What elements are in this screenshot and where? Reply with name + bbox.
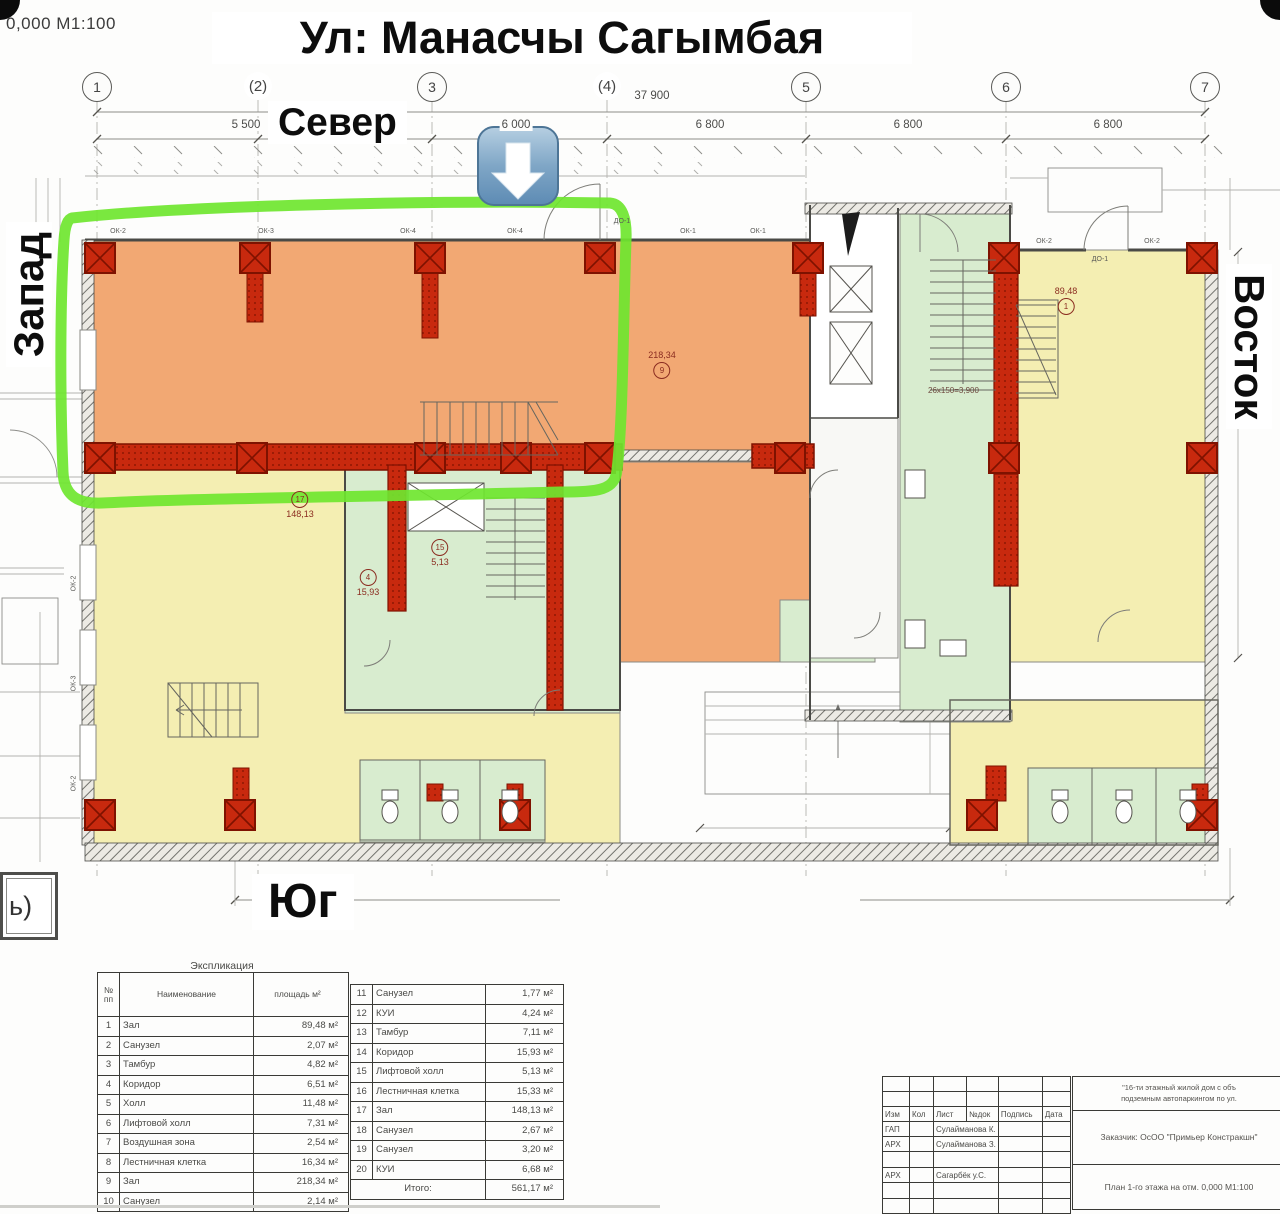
room-tag: 17 148,13 <box>286 490 314 520</box>
row-name: Коридор <box>120 1075 254 1095</box>
project-description: "16-ти этажный жилой дом с объ подземным… <box>1073 1077 1280 1111</box>
row-number: 5 <box>98 1095 120 1115</box>
row-name: Тамбур <box>120 1056 254 1076</box>
row-name: Воздушная зона <box>120 1134 254 1154</box>
compass-south: Юг <box>252 874 354 930</box>
sheet-title-cell: План 1-го этажа на отм. 0,000 М1:100 <box>1073 1165 1280 1211</box>
row-area: 4,24 м² <box>486 1004 564 1024</box>
stamp-col: Дата <box>1042 1107 1070 1122</box>
row-name: Лифтовой холл <box>120 1114 254 1134</box>
row-name: Зал <box>120 1017 254 1037</box>
row-area: 218,34 м² <box>254 1173 349 1193</box>
axis-bubble-1: 1 <box>82 72 112 102</box>
row-name: КУИ <box>373 1160 486 1180</box>
explication-table-1: № пп Наименование площадь м² 1 Зал 89,48… <box>97 972 349 1212</box>
row-name: КУИ <box>373 1004 486 1024</box>
stair-note: 26х150=3,900 <box>928 386 979 395</box>
room-area: 148,13 <box>286 509 314 520</box>
room-number: 1 <box>1058 298 1075 315</box>
room-tag: 4 15,93 <box>357 568 380 598</box>
explication-row: 16 Лестничная клетка 15,33 м² <box>351 1082 564 1102</box>
row-name: Санузел <box>373 1141 486 1161</box>
stamp-signer-row: ГАП Сулайманова К. <box>883 1122 1071 1137</box>
signer-role: ГАП <box>883 1122 910 1137</box>
title-block: Изм Кол Лист №док Подпись Дата ГАП Сулай… <box>882 1076 1280 1210</box>
row-name: Тамбур <box>373 1024 486 1044</box>
explication-row: 12 КУИ 4,24 м² <box>351 1004 564 1024</box>
stamp-col: Лист <box>934 1107 967 1122</box>
window-label: ОК-3 <box>258 228 274 235</box>
row-area: 2,14 м² <box>254 1192 349 1212</box>
row-number: 16 <box>351 1082 373 1102</box>
down-arrow-icon <box>478 127 558 205</box>
explication-row: 10 Санузел 2,14 м² <box>98 1192 349 1212</box>
door-label: ДО-1 <box>1092 256 1108 263</box>
stamp-header-row: Изм Кол Лист №док Подпись Дата <box>883 1107 1071 1122</box>
row-area: 2,54 м² <box>254 1134 349 1154</box>
signer-name: Сагарбёк у.С. <box>934 1168 999 1183</box>
explication-row: 6 Лифтовой холл 7,31 м² <box>98 1114 349 1134</box>
window-label: ОК-1 <box>680 228 696 235</box>
room-tag: 15 5,13 <box>431 538 449 568</box>
project-line: "16-ти этажный жилой дом с объ <box>1122 1083 1236 1093</box>
segment-dimension: 6 000 <box>500 119 533 131</box>
window-label: ОК-4 <box>507 228 523 235</box>
row-number: 20 <box>351 1160 373 1180</box>
axis-bubble-2: (2) <box>244 72 272 100</box>
signer-name: Сулайманова К. <box>934 1122 999 1137</box>
title-block-right: "16-ти этажный жилой дом с объ подземным… <box>1072 1076 1280 1210</box>
explication-row: 5 Холл 11,48 м² <box>98 1095 349 1115</box>
explication-row: 20 КУИ 6,68 м² <box>351 1160 564 1180</box>
room-area: 5,13 <box>431 557 449 568</box>
row-number: 3 <box>98 1056 120 1076</box>
row-name: Санузел <box>120 1192 254 1212</box>
room-tag: 89,48 1 <box>1055 286 1078 316</box>
row-number: 13 <box>351 1024 373 1044</box>
page-divider <box>0 1205 660 1208</box>
row-area: 3,20 м² <box>486 1141 564 1161</box>
row-number: 14 <box>351 1043 373 1063</box>
row-name: Зал <box>120 1173 254 1193</box>
total-label: Итого: <box>351 1180 486 1200</box>
row-area: 15,93 м² <box>486 1043 564 1063</box>
room-number: 9 <box>654 362 671 379</box>
window-label: ОК-2 <box>1036 238 1052 245</box>
compass-west: Запад <box>6 222 52 367</box>
window-label: ОК-4 <box>400 228 416 235</box>
segment-dimension: 5 500 <box>230 119 263 131</box>
segment-dimension: 6 800 <box>1092 119 1125 131</box>
row-area: 7,11 м² <box>486 1024 564 1044</box>
row-area: 11,48 м² <box>254 1095 349 1115</box>
explication-row: 13 Тамбур 7,11 м² <box>351 1024 564 1044</box>
row-area: 2,07 м² <box>254 1036 349 1056</box>
explication-row: 3 Тамбур 4,82 м² <box>98 1056 349 1076</box>
room-number: 15 <box>432 539 449 556</box>
total-value: 561,17 м² <box>486 1180 564 1200</box>
explication-row: 1 Зал 89,48 м² <box>98 1017 349 1037</box>
row-name: Лифтовой холл <box>373 1063 486 1083</box>
row-name: Лестничная клетка <box>120 1153 254 1173</box>
row-name: Санузел <box>120 1036 254 1056</box>
stamp-signer-row: АРХ Сагарбёк у.С. <box>883 1168 1071 1183</box>
row-number: 18 <box>351 1121 373 1141</box>
explication-row: 19 Санузел 3,20 м² <box>351 1141 564 1161</box>
segment-dimension: 6 800 <box>694 119 727 131</box>
row-area: 7,31 м² <box>254 1114 349 1134</box>
project-line: подземным автопаркингом по ул. <box>1121 1094 1237 1104</box>
stamp-col: Изм <box>883 1107 910 1122</box>
title-block-grid: Изм Кол Лист №док Подпись Дата ГАП Сулай… <box>882 1076 1071 1214</box>
stamp-signer-row: АРХ Сулайманова З. <box>883 1137 1071 1152</box>
explication-row: 14 Коридор 15,93 м² <box>351 1043 564 1063</box>
stamp-col: №док <box>967 1107 999 1122</box>
window-label: ОК-2 <box>70 576 77 592</box>
blueprint-page: 0,000 М1:100 Ул: Манасчы Сагымбая 1 (2) … <box>0 0 1280 1214</box>
door-label: ДО-1 <box>614 218 630 225</box>
room-number: 4 <box>360 569 377 586</box>
compass-north: Север <box>268 101 407 144</box>
row-area: 4,82 м² <box>254 1056 349 1076</box>
axis-bubble-4: (4) <box>593 72 621 100</box>
explication-row: 2 Санузел 2,07 м² <box>98 1036 349 1056</box>
row-area: 148,13 м² <box>486 1102 564 1122</box>
column-header-area: площадь м² <box>254 973 349 1017</box>
row-name: Лестничная клетка <box>373 1082 486 1102</box>
overall-dimension: 37 900 <box>632 90 671 102</box>
axis-bubble-5: 5 <box>791 72 821 102</box>
row-number: 19 <box>351 1141 373 1161</box>
column-header-num: № пп <box>98 973 120 1017</box>
explication-row: 9 Зал 218,34 м² <box>98 1173 349 1193</box>
row-area: 89,48 м² <box>254 1017 349 1037</box>
scale-note: 0,000 М1:100 <box>6 14 116 34</box>
stamp-col: Кол <box>910 1107 934 1122</box>
row-name: Санузел <box>373 985 486 1005</box>
row-number: 11 <box>351 985 373 1005</box>
row-number: 12 <box>351 1004 373 1024</box>
row-area: 6,51 м² <box>254 1075 349 1095</box>
window-label: ОК-2 <box>70 776 77 792</box>
row-number: 10 <box>98 1192 120 1212</box>
street-title: Ул: Манасчы Сагымбая <box>212 12 912 64</box>
stamp-col: Подпись <box>998 1107 1042 1122</box>
explication-row: 15 Лифтовой холл 5,13 м² <box>351 1063 564 1083</box>
corner-note: ь) <box>0 872 58 940</box>
total-row: Итого: 561,17 м² <box>351 1180 564 1200</box>
window-label: ОК-3 <box>70 676 77 692</box>
window-label: ОК-2 <box>1144 238 1160 245</box>
signer-role: АРХ <box>883 1137 910 1152</box>
axis-bubble-6: 6 <box>991 72 1021 102</box>
row-number: 4 <box>98 1075 120 1095</box>
row-number: 6 <box>98 1114 120 1134</box>
row-name: Холл <box>120 1095 254 1115</box>
explication-row: 7 Воздушная зона 2,54 м² <box>98 1134 349 1154</box>
row-number: 9 <box>98 1173 120 1193</box>
axis-bubble-3: 3 <box>417 72 447 102</box>
row-number: 7 <box>98 1134 120 1154</box>
row-area: 6,68 м² <box>486 1160 564 1180</box>
room-area: 89,48 <box>1055 286 1078 297</box>
explication-row: 18 Санузел 2,67 м² <box>351 1121 564 1141</box>
client-cell: Заказчик: ОсОО "Примьер Констракшн" <box>1073 1111 1280 1165</box>
room-area: 15,93 <box>357 587 380 598</box>
window-label: ОК-1 <box>750 228 766 235</box>
row-area: 16,34 м² <box>254 1153 349 1173</box>
row-area: 1,77 м² <box>486 985 564 1005</box>
explication-row: 11 Санузел 1,77 м² <box>351 985 564 1005</box>
row-area: 2,67 м² <box>486 1121 564 1141</box>
explication-row: 4 Коридор 6,51 м² <box>98 1075 349 1095</box>
row-number: 15 <box>351 1063 373 1083</box>
row-number: 8 <box>98 1153 120 1173</box>
row-area: 15,33 м² <box>486 1082 564 1102</box>
segment-dimension: 6 800 <box>892 119 925 131</box>
row-number: 2 <box>98 1036 120 1056</box>
row-name: Коридор <box>373 1043 486 1063</box>
row-name: Зал <box>373 1102 486 1122</box>
compass-east: Восток <box>1226 264 1272 429</box>
room-number: 17 <box>292 491 309 508</box>
explication-table-2: 11 Санузел 1,77 м² 12 КУИ 4,24 м² 13 Там… <box>350 984 564 1200</box>
column-header-name: Наименование <box>120 973 254 1017</box>
signer-role: АРХ <box>883 1168 910 1183</box>
row-name: Санузел <box>373 1121 486 1141</box>
row-area: 5,13 м² <box>486 1063 564 1083</box>
axis-bubble-7: 7 <box>1190 72 1220 102</box>
explication-row: 8 Лестничная клетка 16,34 м² <box>98 1153 349 1173</box>
row-number: 1 <box>98 1017 120 1037</box>
row-number: 17 <box>351 1102 373 1122</box>
explication-row: 17 Зал 148,13 м² <box>351 1102 564 1122</box>
signer-name: Сулайманова З. <box>934 1137 999 1152</box>
room-area: 218,34 <box>648 350 676 361</box>
room-tag: 218,34 9 <box>648 350 676 380</box>
window-label: ОК-2 <box>110 228 126 235</box>
